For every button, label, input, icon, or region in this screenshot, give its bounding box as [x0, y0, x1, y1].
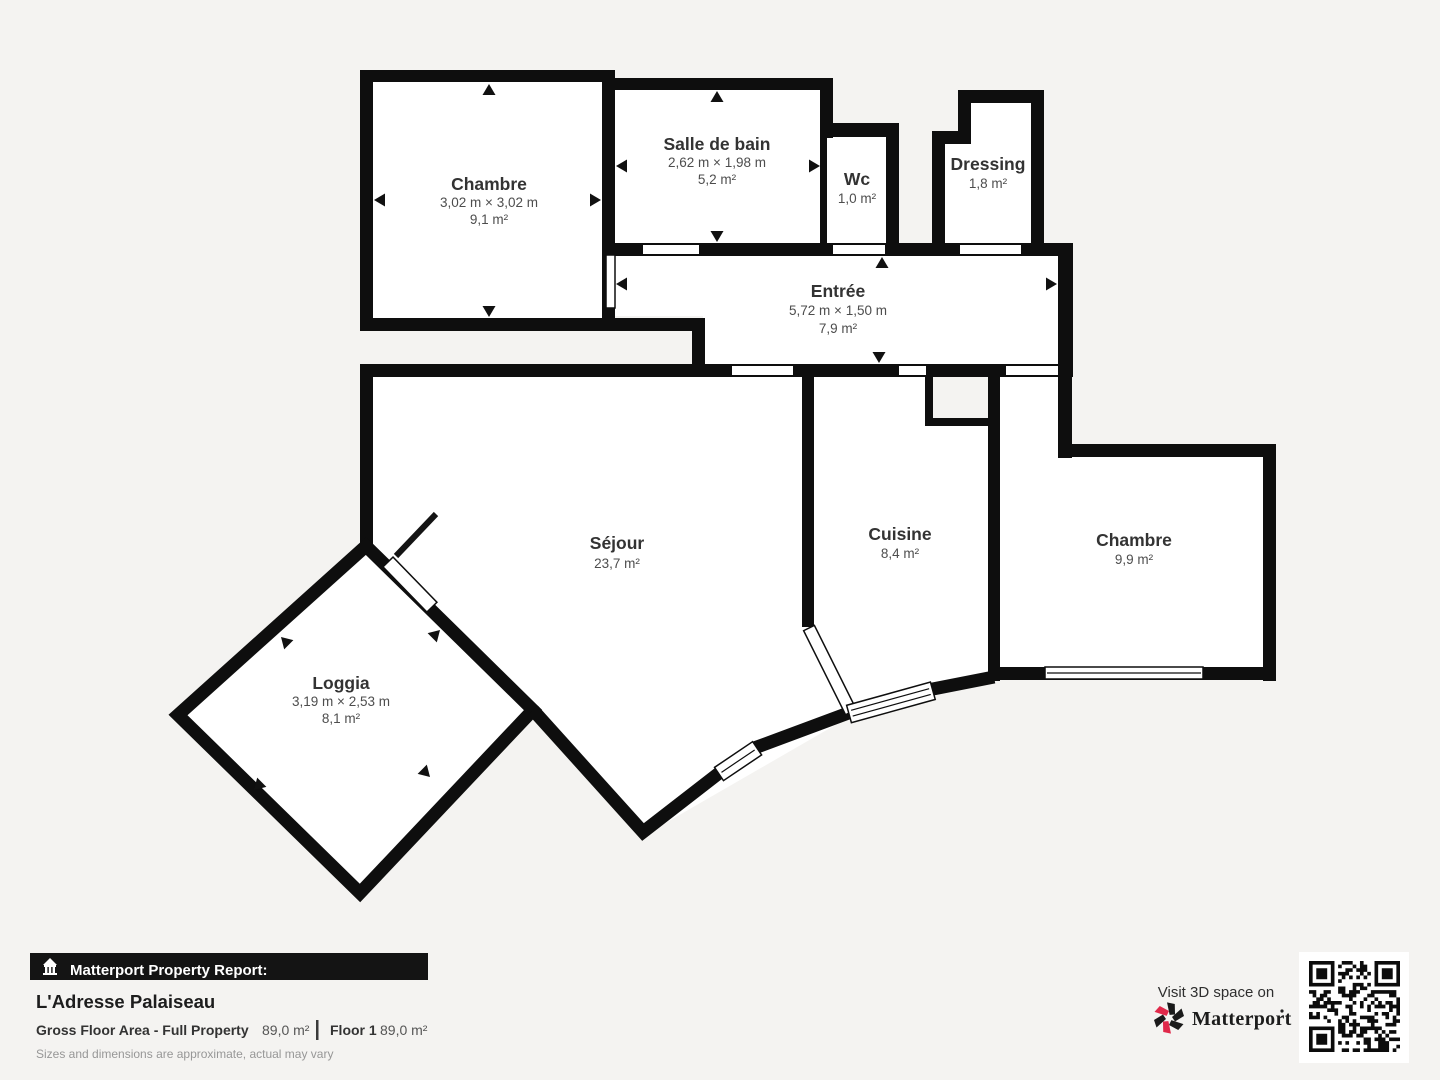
wall-segment [886, 123, 899, 244]
door-opening [732, 366, 793, 375]
room-entree-name: Entrée [811, 281, 866, 301]
wall-segment [602, 78, 833, 90]
room-sejour-name: Séjour [590, 533, 645, 553]
room-chambre-2-floor [994, 370, 1270, 673]
qr-code [1299, 952, 1409, 1063]
wall-segment [802, 374, 814, 627]
wall-segment [360, 364, 1073, 377]
room-sejour-area: 23,7 m² [594, 556, 640, 571]
door-opening [960, 245, 1021, 254]
wall-segment [360, 318, 705, 331]
room-loggia-dims: 3,19 m × 2,53 m [292, 694, 390, 709]
report-banner-label: Matterport Property Report: [70, 962, 268, 979]
wall-segment [925, 418, 996, 426]
room-chambre-1-area: 9,1 m² [470, 212, 509, 227]
property-name: L'Adresse Palaiseau [36, 991, 215, 1012]
divider [316, 1020, 319, 1040]
room-chambre-1-name: Chambre [451, 174, 527, 194]
wall-segment [1058, 243, 1073, 377]
wall-segment [925, 369, 933, 426]
door-opening [643, 245, 699, 254]
wall-segment [360, 364, 373, 545]
room-salle-de-bain-dims: 2,62 m × 1,98 m [668, 155, 766, 170]
wall-segment [1031, 90, 1044, 244]
door-leaf [606, 255, 615, 308]
door-opening [1006, 366, 1058, 375]
room-loggia-name: Loggia [312, 673, 370, 693]
door-opening [833, 245, 885, 254]
promo: Visit 3D space on Matterport [1153, 952, 1409, 1063]
wall-segment [820, 137, 827, 244]
matterport-logo-icon [1153, 1000, 1184, 1035]
room-wc-name: Wc [844, 169, 871, 189]
room-chambre-2-name: Chambre [1096, 530, 1172, 550]
room-salle-de-bain-name: Salle de bain [664, 134, 771, 154]
gross-floor-area-value: 89,0 m² [262, 1022, 310, 1038]
room-dressing-area: 1,8 m² [969, 176, 1008, 191]
floorplan-canvas: Chambre 3,02 m × 3,02 m 9,1 m² Salle de … [0, 0, 1440, 1080]
matterport-floorplan-page: Chambre 3,02 m × 3,02 m 9,1 m² Salle de … [0, 0, 1440, 1080]
door-opening [899, 366, 926, 375]
footer: Matterport Property Report: L'Adresse Pa… [30, 953, 428, 1061]
wall-segment [932, 131, 945, 244]
duct-shaft [933, 377, 988, 418]
disclaimer: Sizes and dimensions are approximate, ac… [36, 1047, 333, 1061]
wall-segment [692, 318, 705, 377]
room-cuisine-area: 8,4 m² [881, 546, 920, 561]
wall-segment [1263, 444, 1276, 681]
matterport-logo-text: Matterport [1192, 1008, 1292, 1030]
room-salle-de-bain-area: 5,2 m² [698, 172, 737, 187]
wall-segment [360, 70, 610, 82]
window [1045, 667, 1203, 679]
visit-3d-label: Visit 3D space on [1158, 984, 1274, 1001]
wall-segment [360, 70, 373, 331]
floor-value: 89,0 m² [380, 1022, 428, 1038]
room-chambre-2-area: 9,9 m² [1115, 552, 1154, 567]
floor-label: Floor 1 [330, 1022, 377, 1038]
wall-segment [1058, 364, 1072, 458]
room-cuisine-name: Cuisine [868, 524, 931, 544]
trademark-dot [1280, 1009, 1283, 1012]
gross-floor-area-label: Gross Floor Area - Full Property [36, 1022, 249, 1038]
room-entree-dims: 5,72 m × 1,50 m [789, 303, 887, 318]
room-wc-area: 1,0 m² [838, 191, 877, 206]
room-loggia-area: 8,1 m² [322, 711, 361, 726]
wall-segment [1058, 444, 1276, 457]
room-chambre-1-dims: 3,02 m × 3,02 m [440, 195, 538, 210]
room-dressing-name: Dressing [951, 154, 1026, 174]
room-wc-floor [824, 135, 888, 245]
room-entree-area: 7,9 m² [819, 321, 858, 336]
wall-segment [988, 364, 1000, 681]
